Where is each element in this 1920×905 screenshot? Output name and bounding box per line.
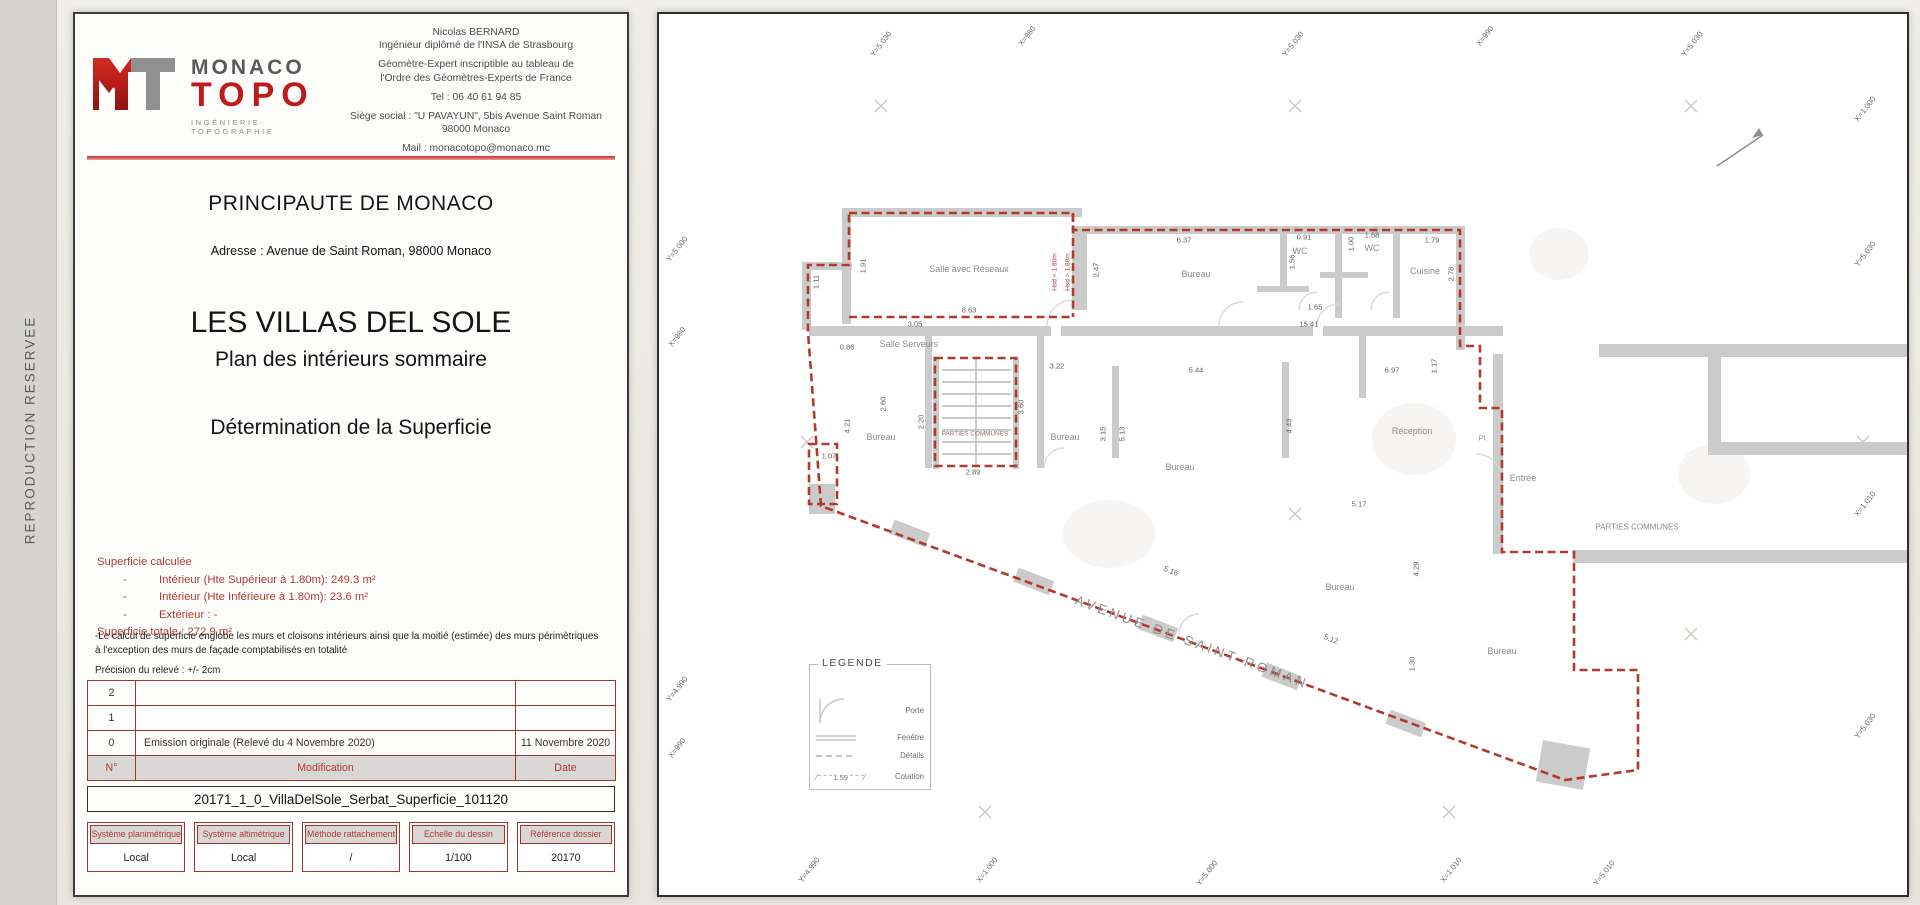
info-box-value: Local — [195, 846, 291, 871]
legend-label: Fenêtre — [897, 733, 924, 742]
title-block-sheet: MONACO TOPO INGÉNIERIE· TOPOGRAPHIE Nico… — [73, 12, 629, 897]
info-box-method: Méthode rattachement / — [302, 822, 400, 872]
surveyor-contact-block: Nicolas BERNARD Ingénieur diplômé de l'I… — [345, 26, 607, 155]
door-symbol-icon — [816, 695, 850, 725]
surveyor-name: Nicolas BERNARD — [345, 26, 607, 39]
legend-label: Porte — [905, 706, 924, 715]
dimension-label: 6.37 — [1177, 236, 1192, 245]
dimension-label: 15.41 — [1299, 320, 1318, 329]
info-box-value: 20170 — [518, 846, 614, 871]
reproduction-watermark: REPRODUCTION RESERVEE — [23, 316, 38, 545]
dimension-label: 1.11 — [812, 275, 821, 289]
brand-topo: TOPO — [191, 76, 315, 115]
info-box-planimetric: Système planimétrique Local — [87, 822, 185, 872]
details-symbol-icon — [816, 753, 856, 759]
dimension-label: 4.21 — [843, 419, 852, 434]
grid-coordinate-label: Y=5.010 — [1591, 859, 1616, 888]
grid-coordinate-label: X=980 — [1016, 24, 1037, 47]
grid-coordinate-label: Y=5.030 — [868, 30, 893, 59]
grid-coordinate-label: Y=5.030 — [1852, 712, 1877, 741]
room-label: Bureau — [866, 432, 895, 442]
surveyor-address-1: Siège social : "U PAVAYUN", 5bis Avenue … — [345, 110, 607, 123]
grid-coordinate-label: Y=5.000 — [664, 235, 689, 264]
superficie-block: Superficie calculée Intérieur (Hte Supér… — [97, 554, 376, 642]
info-box-value: Local — [88, 846, 184, 871]
room-label: Bureau — [1165, 462, 1194, 472]
room-label: Salle avec Réseaux — [929, 264, 1009, 274]
dimension-label: 0.91 — [1297, 233, 1312, 242]
page-margin-strip: REPRODUCTION RESERVEE — [0, 0, 57, 905]
col-modification: Modification — [136, 756, 516, 781]
grid-coordinate-label: Y=5.000 — [1194, 859, 1219, 888]
room-label: Bureau — [1181, 269, 1210, 279]
legend-label: Détails — [900, 751, 924, 760]
col-num: N° — [88, 756, 136, 781]
site-address: Adresse : Avenue de Saint Roman, 98000 M… — [75, 244, 627, 258]
dimension-label: 6.97 — [1385, 366, 1400, 375]
revision-table: 2 1 0 Emission originale (Relevé du 4 No… — [87, 680, 616, 781]
cotation-symbol: ∕1.59∕ — [816, 767, 865, 785]
room-label: WC — [1293, 246, 1308, 256]
table-row: 1 — [88, 706, 616, 731]
floor-plan-sheet: Salle avec RéseauxSalle ServeursBureauWC… — [657, 12, 1909, 897]
info-box-label: Système altimétrique — [197, 825, 289, 844]
dimension-label: 3.15 — [1099, 427, 1108, 442]
dimension-label: 2.47 — [1092, 263, 1101, 278]
rev-date: 11 Novembre 2020 — [516, 731, 616, 756]
rev-mod — [136, 706, 516, 731]
surveyor-order-1: Géomètre-Expert inscriptible au tableau … — [345, 58, 607, 71]
dimension-label: 4.29 — [1412, 562, 1421, 577]
superficie-item: Intérieur (Hte Supérieur à 1.80m): 249.3… — [97, 572, 376, 590]
table-header-row: N° Modification Date — [88, 756, 616, 781]
info-box-altimetric: Système altimétrique Local — [194, 822, 292, 872]
grid-coordinate-label: X=1.010 — [1852, 490, 1877, 519]
window-symbol-icon — [816, 734, 856, 742]
dimension-label: 2.60 — [879, 397, 888, 412]
dimension-label: 5.17 — [1352, 500, 1367, 509]
room-label: WC — [1365, 243, 1380, 253]
drawing-filename: 20171_1_0_VillaDelSole_Serbat_Superficie… — [87, 786, 615, 812]
room-label: Bureau — [1487, 646, 1516, 656]
room-label: Bureau — [1050, 432, 1079, 442]
col-date: Date — [516, 756, 616, 781]
info-box-label: Echelle du dessin — [412, 825, 504, 844]
dimension-label: 5.12 — [1322, 632, 1339, 646]
red-separator-rule — [87, 156, 615, 160]
info-box-label: Système planimétrique — [90, 825, 182, 844]
info-box-reference: Référence dossier 20170 — [517, 822, 615, 872]
rev-mod: Emission originale (Relevé du 4 Novembre… — [136, 731, 516, 756]
surveyor-address-2: 98000 Monaco — [345, 123, 607, 136]
grid-coordinate-label: X=1.010 — [1438, 856, 1463, 885]
monaco-topo-logo: MONACO TOPO INGÉNIERIE· TOPOGRAPHIE — [87, 40, 327, 150]
info-box-value: / — [303, 846, 399, 871]
dimension-label: 1.68 — [1365, 231, 1380, 240]
rev-date — [516, 706, 616, 731]
legend-title: LEGENDE — [818, 657, 887, 669]
info-box-label: Référence dossier — [520, 825, 612, 844]
dimension-label: 2.20 — [917, 415, 926, 430]
dimension-label: 1.17 — [1430, 359, 1439, 374]
dimension-label: 2.78 — [1447, 267, 1456, 282]
rev-num: 1 — [88, 706, 136, 731]
dimension-label: 5.44 — [1189, 366, 1204, 375]
note-precision: Précision du relevé : +/- 2cm — [95, 664, 603, 678]
height-note-label: Hsd > 1.80m — [1065, 253, 1072, 291]
brand-tagline: INGÉNIERIE· TOPOGRAPHIE — [191, 118, 327, 136]
legend-row-details: Détails — [816, 751, 924, 760]
room-label: Entrée — [1510, 473, 1537, 483]
surveyor-degree: Ingénieur diplômé de l'INSA de Strasbour… — [345, 39, 607, 52]
superficie-title: Superficie calculée — [97, 554, 376, 572]
dimension-label: 2.89 — [966, 468, 981, 477]
dimension-label: 3.05 — [908, 320, 923, 329]
surveyor-order-2: l'Ordre des Géomètres-Experts de France — [345, 72, 607, 85]
table-row: 0 Emission originale (Relevé du 4 Novemb… — [88, 731, 616, 756]
dimension-label: 1.65 — [1308, 303, 1323, 312]
dimension-label: 1.30 — [1408, 657, 1417, 672]
dimension-label: 3.22 — [1050, 362, 1065, 371]
table-row: 2 — [88, 681, 616, 706]
monaco-topo-monogram-icon — [87, 40, 183, 132]
surveyor-mail: Mail : monacotopo@monaco.mc — [345, 142, 607, 155]
dimension-label: 1.07 — [822, 452, 837, 461]
dimension-label: 1.79 — [1425, 236, 1440, 245]
page: { "side": { "watermark": "REPRODUCTION R… — [0, 0, 1920, 905]
rev-num: 0 — [88, 731, 136, 756]
room-label: Bureau — [1325, 582, 1354, 592]
legend-row-porte: Porte — [816, 695, 924, 725]
room-label: PARTIES COMMUNES — [942, 431, 1009, 438]
info-box-scale: Echelle du dessin 1/100 — [409, 822, 507, 872]
rev-mod — [136, 681, 516, 706]
info-box-value: 1/100 — [410, 846, 506, 871]
grid-coordinate-label: Y=5.030 — [1679, 30, 1704, 59]
legend-sample-dimension: 1.59 — [834, 773, 848, 782]
dimension-label: 8.63 — [962, 306, 977, 315]
superficie-item: Extérieur : - — [97, 607, 376, 625]
superficie-item: Intérieur (Hte Inférieure à 1.80m): 23.6… — [97, 589, 376, 607]
grid-coordinate-label: Y=4.990 — [664, 675, 689, 704]
grid-coordinate-label: X=980 — [666, 325, 687, 348]
country-title: PRINCIPAUTE DE MONACO — [75, 192, 627, 216]
dimension-label: 0.86 — [840, 343, 855, 352]
height-note-label: Hsd < 1.80m — [1052, 253, 1059, 291]
surveyor-tel: Tel : 06 40 61 94 85 — [345, 91, 607, 104]
room-label: PARTIES COMMUNES — [1595, 523, 1678, 532]
note-method: -Le calcul de superficie englobe les mur… — [95, 630, 603, 659]
grid-coordinate-label: X=1.000 — [974, 856, 999, 885]
legend-row-cotation: ∕1.59∕ Cotation — [816, 767, 924, 785]
plan-subtitle-2: Détermination de la Superficie — [75, 416, 627, 440]
grid-coordinate-label: Y=5.030 — [1852, 240, 1877, 269]
rev-num: 2 — [88, 681, 136, 706]
info-boxes-row: Système planimétrique Local Système alti… — [87, 822, 615, 872]
dimension-label: 1.56 — [1288, 255, 1297, 270]
legend-row-fenetre: Fenêtre — [816, 733, 924, 742]
dimension-label: 5.13 — [1118, 427, 1127, 442]
grid-coordinate-label: Y=4.990 — [796, 856, 821, 885]
info-box-label: Méthode rattachement — [305, 825, 397, 844]
dimension-label: 1.00 — [1347, 237, 1356, 252]
dimension-label: 3.60 — [1017, 400, 1026, 415]
room-label: Salle Serveurs — [880, 339, 939, 349]
dimension-label: 4.43 — [1285, 419, 1294, 434]
grid-coordinate-label: X=990 — [666, 736, 687, 759]
grid-coordinate-label: X=990 — [1474, 24, 1495, 47]
room-label: Réception — [1392, 426, 1433, 436]
room-label: Cuisine — [1410, 266, 1440, 276]
rev-date — [516, 681, 616, 706]
grid-coordinate-label: Y=5.030 — [1280, 30, 1305, 59]
legend-box: LEGENDE Porte Fenêtre Détails ∕1.59∕ — [809, 664, 931, 790]
room-label: Pl. — [1479, 434, 1488, 443]
plan-subtitle: Plan des intérieurs sommaire — [75, 348, 627, 372]
dimension-label: 5.16 — [1162, 564, 1179, 578]
legend-label: Cotation — [895, 772, 924, 781]
dimension-label: 1.91 — [859, 259, 868, 274]
project-title: LES VILLAS DEL SOLE — [75, 306, 627, 340]
grid-coordinate-label: X=1.000 — [1852, 95, 1877, 124]
calculation-notes: -Le calcul de superficie englobe les mur… — [95, 630, 603, 678]
